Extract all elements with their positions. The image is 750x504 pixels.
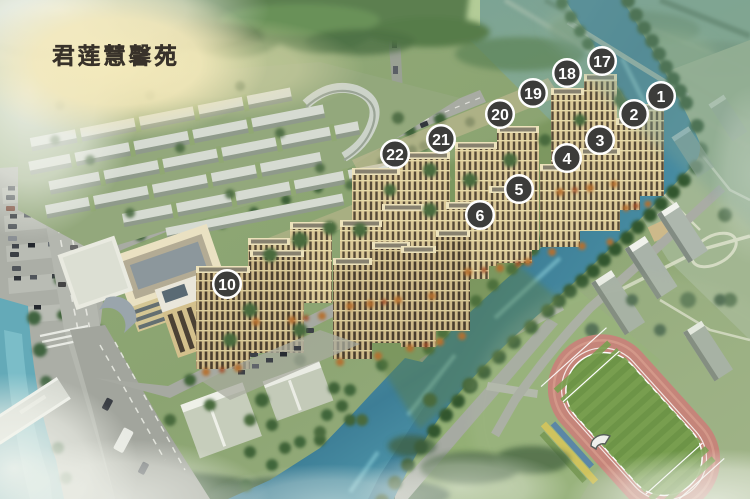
svg-text:18: 18 xyxy=(558,66,576,83)
svg-text:5: 5 xyxy=(515,182,524,199)
svg-text:10: 10 xyxy=(218,277,236,294)
svg-text:3: 3 xyxy=(596,133,605,150)
svg-text:19: 19 xyxy=(524,86,542,103)
svg-text:1: 1 xyxy=(657,89,666,106)
svg-text:17: 17 xyxy=(593,54,611,71)
svg-text:22: 22 xyxy=(386,147,404,164)
svg-text:21: 21 xyxy=(432,132,450,149)
svg-text:2: 2 xyxy=(630,107,639,124)
svg-text:6: 6 xyxy=(476,208,485,225)
svg-text:君莲慧馨苑: 君莲慧馨苑 xyxy=(52,44,180,69)
svg-text:20: 20 xyxy=(491,107,509,124)
svg-text:4: 4 xyxy=(563,151,572,168)
